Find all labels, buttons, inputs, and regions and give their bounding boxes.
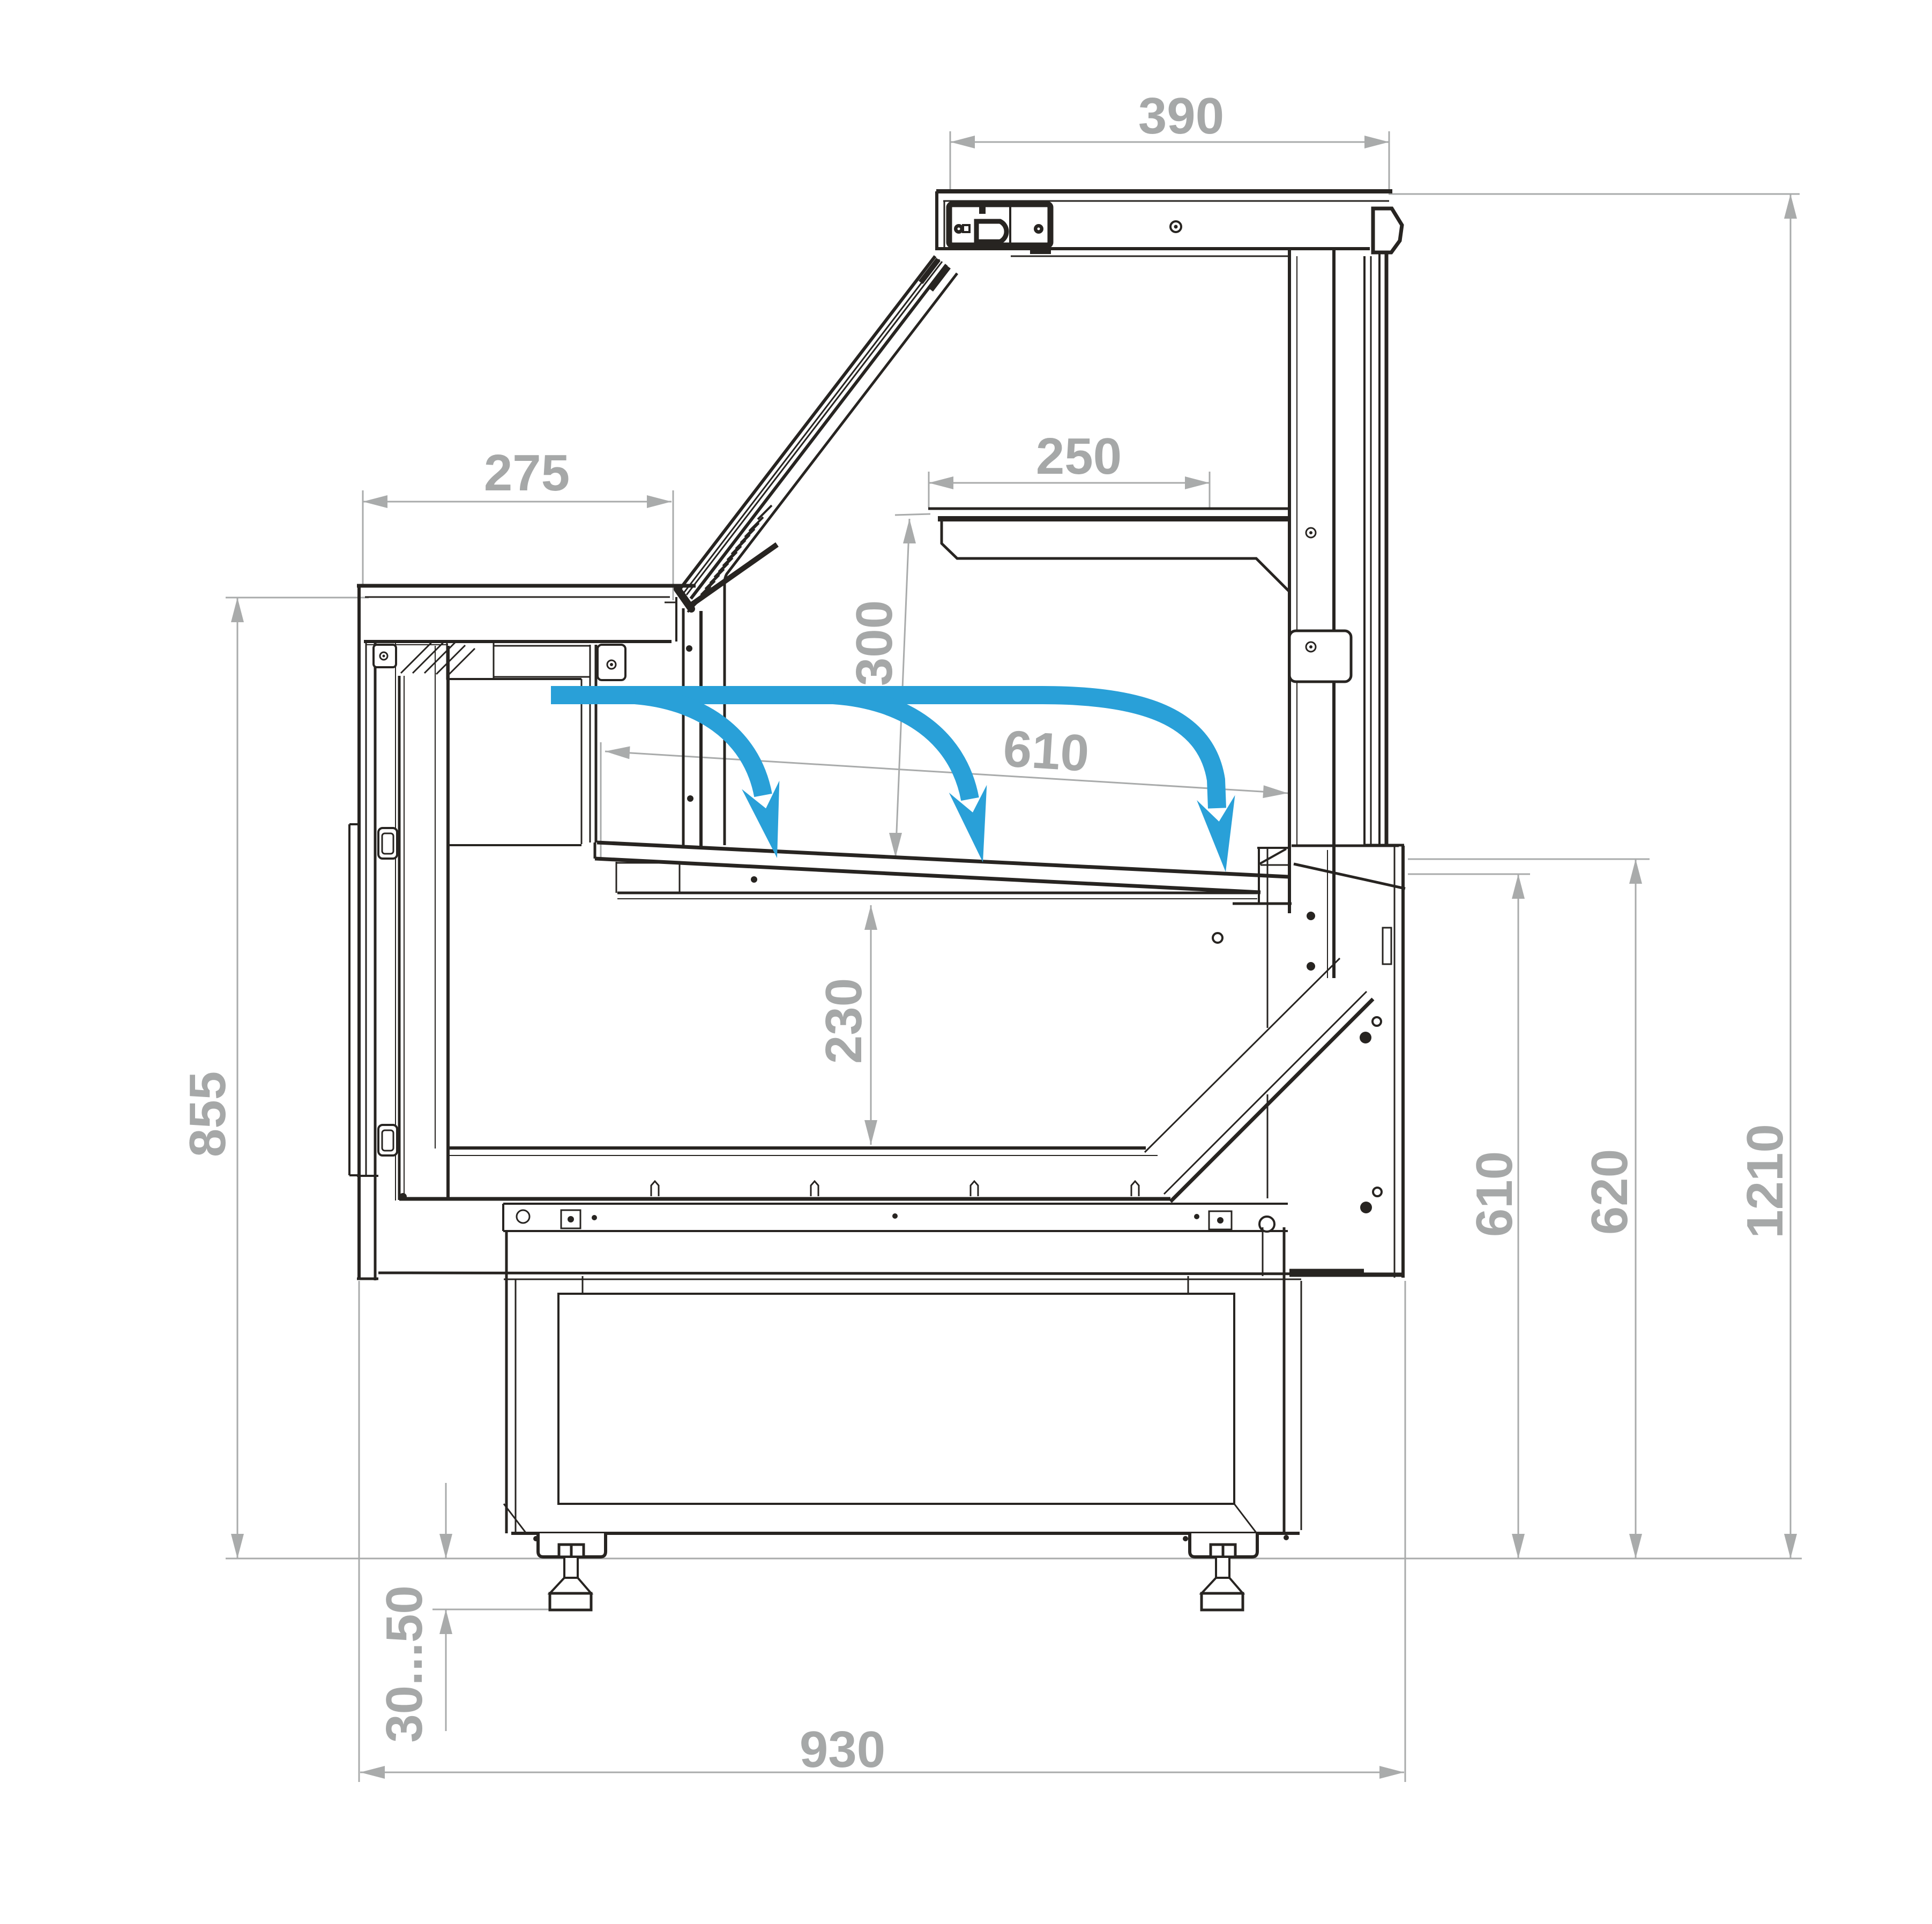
svg-text:250: 250 — [1036, 428, 1122, 485]
svg-text:620: 620 — [1581, 1149, 1638, 1235]
svg-text:930: 930 — [800, 1721, 885, 1778]
svg-text:275: 275 — [484, 444, 570, 502]
svg-text:610: 610 — [1466, 1151, 1523, 1237]
svg-text:390: 390 — [1138, 87, 1224, 145]
svg-text:300: 300 — [846, 600, 903, 686]
svg-text:610: 610 — [1002, 720, 1091, 782]
svg-text:230: 230 — [815, 978, 872, 1064]
svg-text:30...50: 30...50 — [376, 1585, 433, 1743]
svg-text:1210: 1210 — [1736, 1124, 1794, 1239]
svg-text:855: 855 — [179, 1071, 236, 1157]
